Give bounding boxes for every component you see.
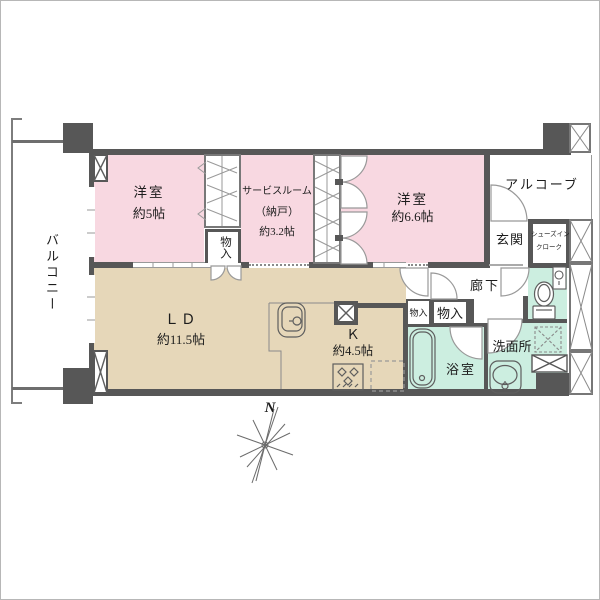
entrance-label: 玄関: [489, 232, 531, 249]
alcove-label: アルコーブ: [496, 177, 588, 194]
closet-bedroom66-box: [313, 154, 341, 264]
wall-bedroom66-east: [484, 154, 490, 268]
compass-north-label: N: [264, 400, 277, 416]
open-boundary-service: [249, 264, 309, 266]
bedroom5-name-label: 洋室: [94, 184, 204, 202]
open-boundary-corridor: [408, 264, 428, 266]
hallway-label: 廊下: [464, 278, 506, 295]
storage-bedroom5-label: 物入: [214, 231, 232, 263]
living-name-label: ＬＤ: [121, 311, 241, 330]
compass-rose: [237, 407, 293, 483]
storage-hall-large-box: 物入: [431, 299, 469, 326]
wall-ld-north-1: [94, 262, 133, 268]
service-room-label-3: 約3.2帖: [239, 225, 315, 239]
wall-alcove-entrance: [528, 219, 571, 224]
room-toilet: [528, 268, 567, 319]
floor-plan: 物入 物入: [0, 0, 600, 600]
wall-alcove-stub: [484, 219, 490, 224]
balcony-rail-top: [12, 140, 63, 143]
wall-bath-washroom: [484, 323, 488, 389]
storage-hall-small-box: 物入: [406, 299, 431, 326]
sic-label-1: シューズイン: [531, 231, 567, 239]
balcony-label: バルコニー: [39, 223, 59, 323]
room-bath: [408, 327, 484, 389]
service-room-label-1: サービスルーム: [239, 185, 315, 198]
balcony-rail-tick-bottom: [11, 402, 22, 404]
bedroom66-size-label: 約6.6帖: [341, 209, 484, 226]
entrance-step-line: [489, 264, 523, 266]
pillar-bedroom5: [93, 154, 108, 182]
bedroom66-name-label: 洋室: [341, 191, 484, 209]
door-storage-hall: [431, 273, 457, 299]
sliding-door-bedroom5: [133, 262, 211, 268]
washroom-label: 洗面所: [485, 339, 539, 356]
balcony-rail-tick-top: [11, 118, 22, 120]
bedroom5-size-label: 約5帖: [94, 206, 204, 223]
pillar-living: [93, 350, 108, 394]
kitchen-name-label: Ｋ: [323, 326, 383, 344]
wall-toilet-south: [519, 319, 567, 323]
wall-kitchen-north: [356, 303, 406, 308]
pillar-east-3: [569, 351, 593, 395]
living-size-label: 約11.5帖: [121, 332, 241, 349]
alcove-east-edge: [591, 155, 592, 219]
wall-bottom: [89, 389, 569, 396]
balcony-rail-bottom: [12, 387, 63, 390]
wall-block-top-right: [543, 123, 571, 155]
storage-hall-large-label: 物入: [437, 303, 463, 322]
storage-hall-small-label: 物入: [409, 306, 427, 319]
balcony-rail-outer: [11, 118, 13, 404]
pillar-top-right: [569, 123, 591, 153]
pillar-east-2: [569, 263, 593, 351]
pillar-east-1: [569, 219, 593, 263]
sliding-door-bedroom66: [373, 262, 406, 268]
window-living: [87, 275, 95, 343]
wall-closet-hall-east: [469, 299, 474, 326]
sic-label-2: クローク: [531, 244, 567, 252]
wall-corridor-north: [428, 262, 484, 268]
service-room-label-2: （納戸）: [239, 205, 315, 219]
wall-toilet-north: [528, 263, 571, 268]
wall-ld-north-2: [241, 262, 249, 268]
bath-label: 浴室: [439, 362, 483, 379]
kitchen-size-label: 約4.5帖: [323, 343, 383, 359]
pillar-kitchen: [334, 301, 358, 325]
closet-bedroom5-box: [204, 154, 241, 228]
